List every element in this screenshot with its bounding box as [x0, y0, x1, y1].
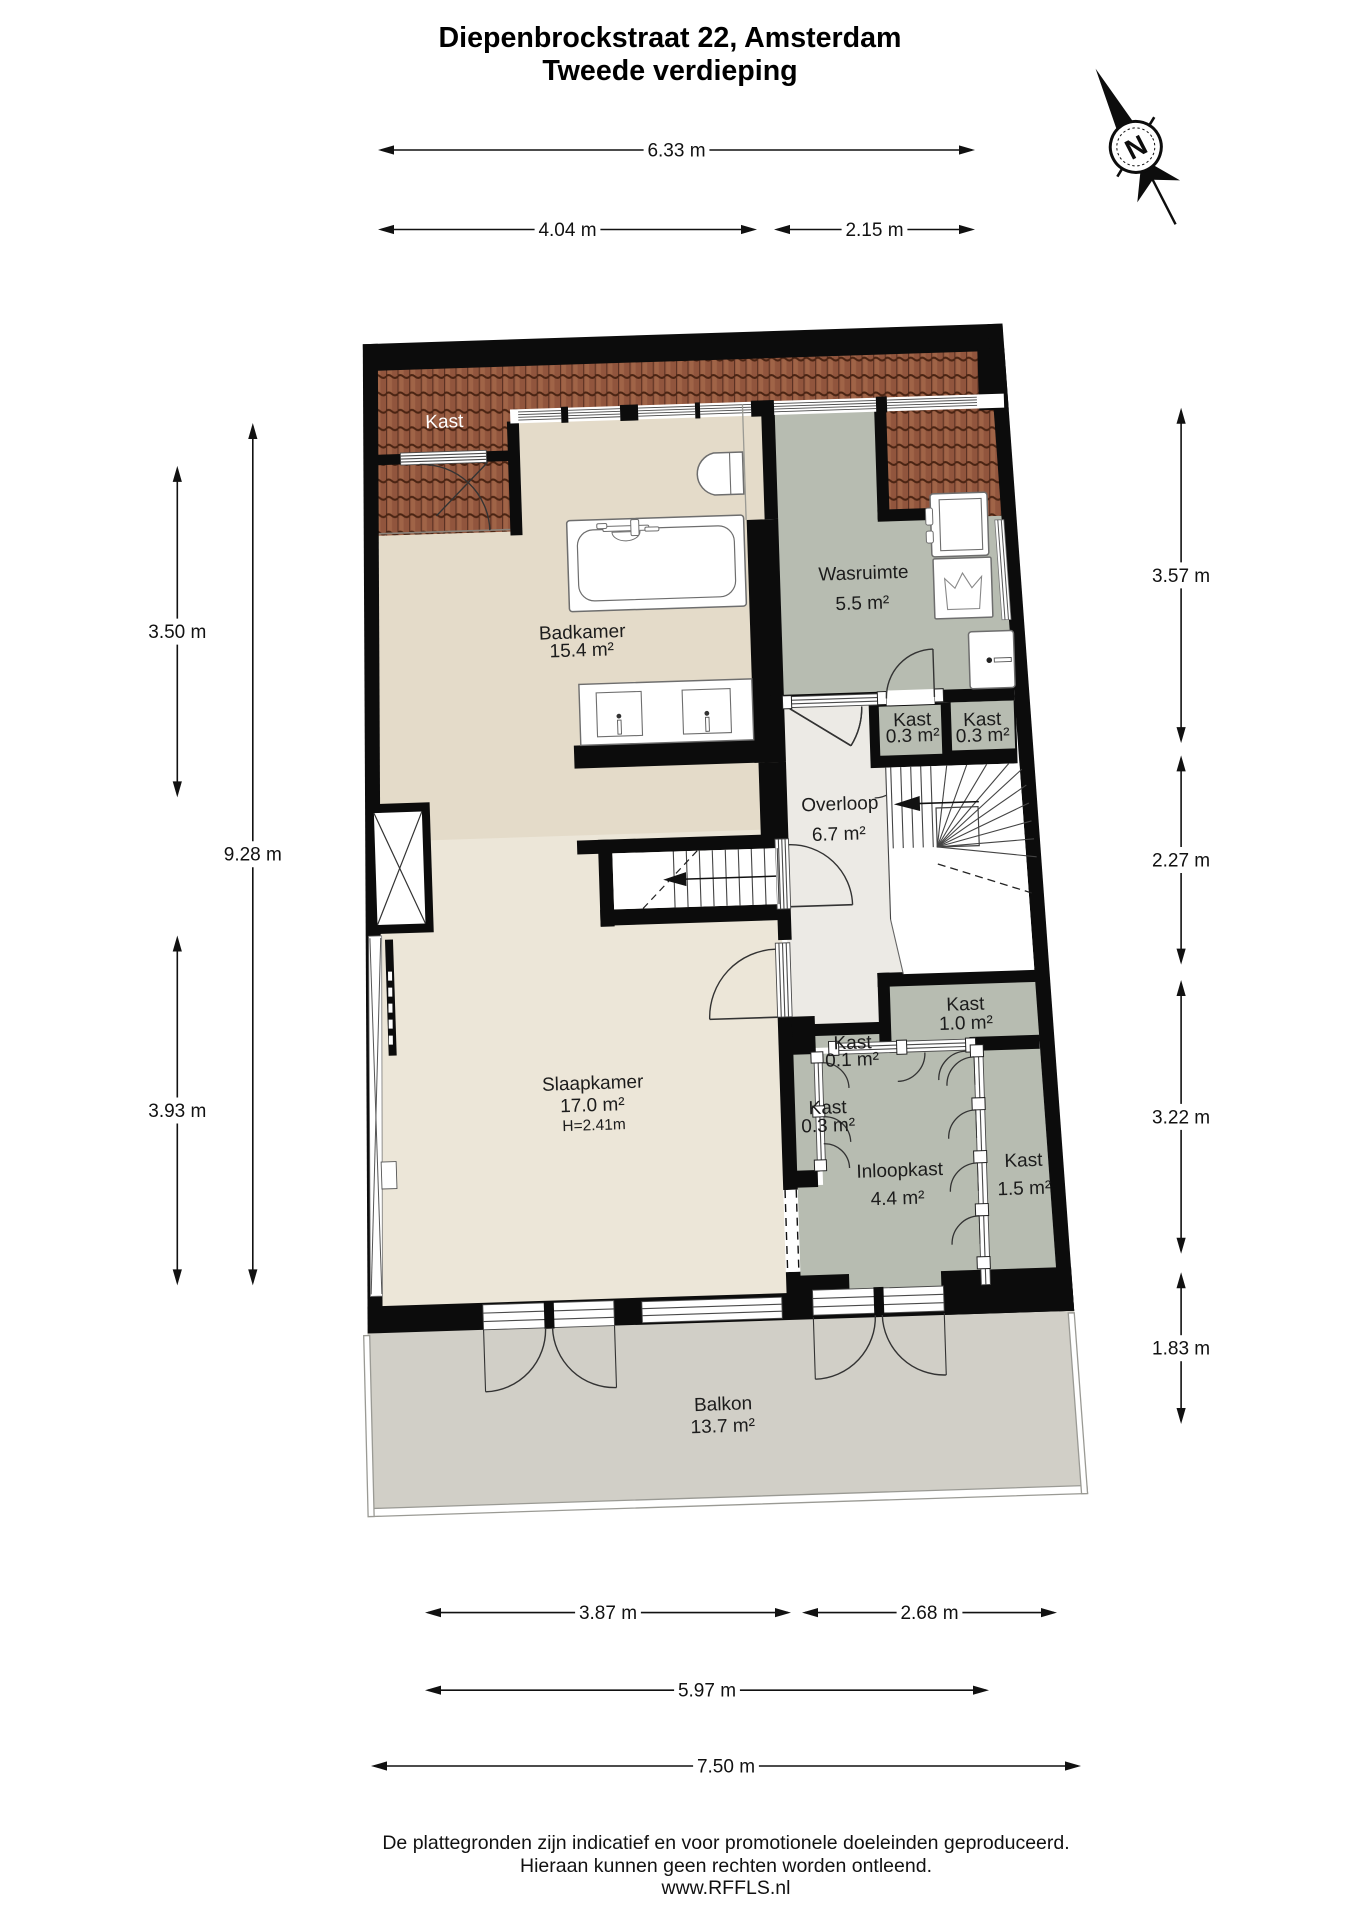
svg-text:4.4 m²: 4.4 m² — [870, 1188, 925, 1211]
svg-text:0.3 m²: 0.3 m² — [801, 1115, 856, 1138]
svg-text:17.0 m²: 17.0 m² — [560, 1094, 625, 1117]
svg-text:Tweede verdieping: Tweede verdieping — [542, 55, 797, 87]
svg-text:7.50 m: 7.50 m — [697, 1757, 755, 1778]
svg-text:Diepenbrockstraat 22, Amsterda: Diepenbrockstraat 22, Amsterdam — [439, 22, 902, 54]
svg-text:2.15 m: 2.15 m — [845, 220, 903, 241]
svg-text:www.RFFLS.nl: www.RFFLS.nl — [661, 1877, 791, 1899]
svg-text:2.68 m: 2.68 m — [900, 1603, 958, 1624]
svg-text:3.87 m: 3.87 m — [579, 1603, 637, 1624]
svg-text:Slaapkamer: Slaapkamer — [542, 1072, 645, 1096]
svg-text:1.83 m: 1.83 m — [1152, 1339, 1210, 1360]
svg-text:De plattegronden zijn indicati: De plattegronden zijn indicatief en voor… — [382, 1832, 1069, 1854]
svg-text:0.1 m²: 0.1 m² — [825, 1049, 880, 1072]
svg-text:15.4 m²: 15.4 m² — [549, 639, 614, 662]
svg-text:3.22 m: 3.22 m — [1152, 1107, 1210, 1128]
svg-text:Inloopkast: Inloopkast — [856, 1159, 944, 1183]
svg-text:13.7 m²: 13.7 m² — [690, 1415, 755, 1438]
svg-text:2.27 m: 2.27 m — [1152, 851, 1210, 872]
svg-text:Hieraan kunnen geen rechten wo: Hieraan kunnen geen rechten worden ontle… — [520, 1855, 932, 1877]
svg-text:1.5 m²: 1.5 m² — [997, 1177, 1052, 1200]
svg-text:9.28 m: 9.28 m — [224, 845, 282, 866]
svg-text:Wasruimte: Wasruimte — [818, 562, 909, 586]
svg-text:Overloop: Overloop — [801, 793, 879, 816]
svg-text:5.5 m²: 5.5 m² — [835, 592, 890, 615]
svg-text:0.3 m²: 0.3 m² — [885, 725, 940, 748]
svg-text:Kast: Kast — [425, 411, 464, 433]
svg-text:0.3 m²: 0.3 m² — [955, 725, 1010, 748]
svg-text:Balkon: Balkon — [694, 1393, 753, 1416]
svg-text:6.33 m: 6.33 m — [647, 141, 705, 162]
svg-text:6.7 m²: 6.7 m² — [812, 823, 867, 846]
svg-text:3.93 m: 3.93 m — [148, 1101, 206, 1122]
svg-text:Kast: Kast — [1004, 1150, 1043, 1172]
svg-text:3.57 m: 3.57 m — [1152, 566, 1210, 587]
svg-text:4.04 m: 4.04 m — [538, 220, 596, 241]
svg-text:5.97 m: 5.97 m — [678, 1681, 736, 1702]
svg-text:3.50 m: 3.50 m — [148, 622, 206, 643]
svg-text:1.0 m²: 1.0 m² — [939, 1012, 994, 1035]
svg-text:H=2.41m: H=2.41m — [562, 1116, 626, 1135]
